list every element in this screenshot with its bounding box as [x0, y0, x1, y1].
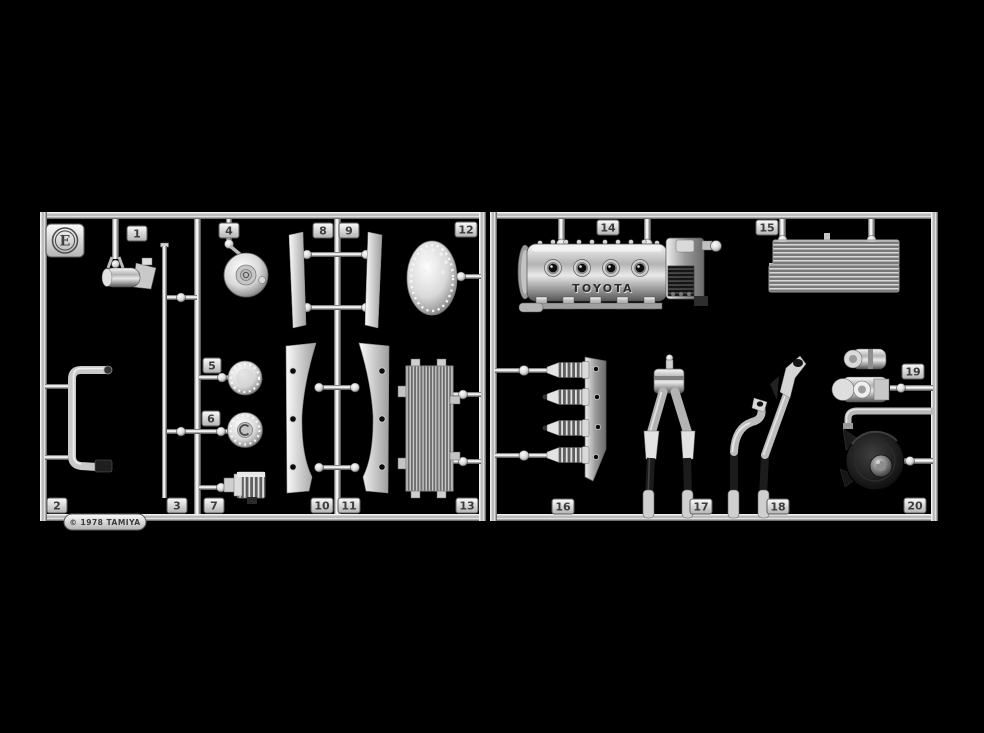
part-8-trim-strip: [289, 232, 306, 328]
part-15-oil-cooler: [769, 233, 899, 292]
svg-text:1: 1: [133, 228, 141, 241]
svg-text:12: 12: [458, 224, 473, 237]
copyright-plate: © 1978 TAMIYA: [64, 514, 146, 530]
svg-text:8: 8: [319, 225, 327, 238]
part-3-long-rod: [161, 243, 169, 498]
frame-bar: [490, 212, 938, 219]
svg-text:9: 9: [345, 225, 353, 238]
frame-bar: [479, 212, 486, 521]
svg-text:13: 13: [459, 500, 474, 513]
part-14-engine-cam-cover: TOYOTA TOYOTA: [518, 238, 722, 312]
part-9-trim-strip: [365, 232, 382, 328]
svg-text:16: 16: [555, 501, 571, 514]
part-tag-2: 2: [47, 498, 67, 513]
svg-text:19: 19: [905, 366, 920, 379]
svg-text:4: 4: [225, 225, 233, 238]
part-5-riveted-disc: [228, 361, 262, 395]
svg-text:5: 5: [208, 360, 216, 373]
svg-text:3: 3: [173, 500, 181, 513]
part-6-riveted-hub-disc: [228, 413, 263, 448]
part-tag-17: 17: [690, 499, 712, 514]
part-tag-13: 13: [456, 498, 478, 513]
part-tag-7: 7: [204, 498, 224, 513]
part-tag-14: 14: [597, 220, 619, 235]
svg-text:18: 18: [770, 501, 785, 514]
part-tag-3: 3: [167, 498, 187, 513]
stack-row: [547, 362, 589, 379]
frame-bar: [931, 212, 938, 521]
part-tag-19: 19: [902, 364, 924, 379]
part-18-curved-exhaust-pipes: [728, 356, 806, 518]
svg-text:15: 15: [759, 222, 774, 235]
svg-text:11: 11: [341, 500, 356, 513]
part-4-pulley-disc: [224, 253, 268, 297]
copyright-text: © 1978 TAMIYA: [69, 518, 140, 527]
part-17-y-exhaust-pipe: [643, 355, 695, 519]
distributor: [668, 266, 694, 296]
stack-row: [547, 447, 589, 464]
part-tag-10: 10: [311, 498, 333, 513]
sprue-letter: E: [60, 234, 71, 250]
part-16-injector-stacks: [543, 357, 607, 481]
svg-text:7: 7: [210, 500, 218, 513]
frame-bar: [490, 212, 497, 521]
part-tag-9: 9: [339, 223, 359, 238]
toyota-logo-text: TOYOTA: [572, 282, 634, 295]
part-tag-18: 18: [767, 499, 789, 514]
svg-text:20: 20: [907, 500, 923, 513]
part-tag-6: 6: [202, 411, 220, 426]
part-1-pump-cylinder: [102, 257, 156, 289]
part-11-blade-panel: [359, 343, 389, 493]
frame-bar: [40, 212, 486, 219]
part-tag-8: 8: [313, 223, 333, 238]
part-2-curved-pipe: [72, 366, 112, 472]
frame-bar: [40, 212, 47, 521]
part-tag-1: 1: [127, 226, 147, 241]
part-tag-5: 5: [203, 358, 221, 373]
sprue-photo-svg: TOYOTA TOYOTA: [0, 0, 984, 733]
part-tag-4: 4: [219, 223, 239, 238]
part-7-ribbed-box: [224, 472, 265, 504]
svg-text:14: 14: [600, 222, 616, 235]
part-20-horn: [840, 429, 904, 490]
svg-text:10: 10: [314, 500, 330, 513]
part-tag-12: 12: [455, 222, 477, 237]
sprue-letter-badge: E: [46, 224, 84, 257]
part-tag-20: 20: [904, 498, 926, 513]
part-10-blade-panel: [286, 343, 316, 493]
svg-text:6: 6: [207, 413, 215, 426]
part-12-riveted-oval-plate: [407, 241, 457, 315]
stack-row: [543, 389, 590, 406]
sprue-plate-photo: TOYOTA TOYOTA: [0, 0, 984, 733]
frame-bar: [490, 514, 938, 521]
part-tag-15: 15: [756, 220, 778, 235]
stack-row: [543, 420, 590, 437]
svg-text:17: 17: [693, 501, 708, 514]
svg-text:2: 2: [53, 500, 61, 513]
part-13-finned-cooler: [398, 359, 460, 498]
part-tag-16: 16: [552, 499, 574, 514]
part-tag-11: 11: [338, 498, 360, 513]
